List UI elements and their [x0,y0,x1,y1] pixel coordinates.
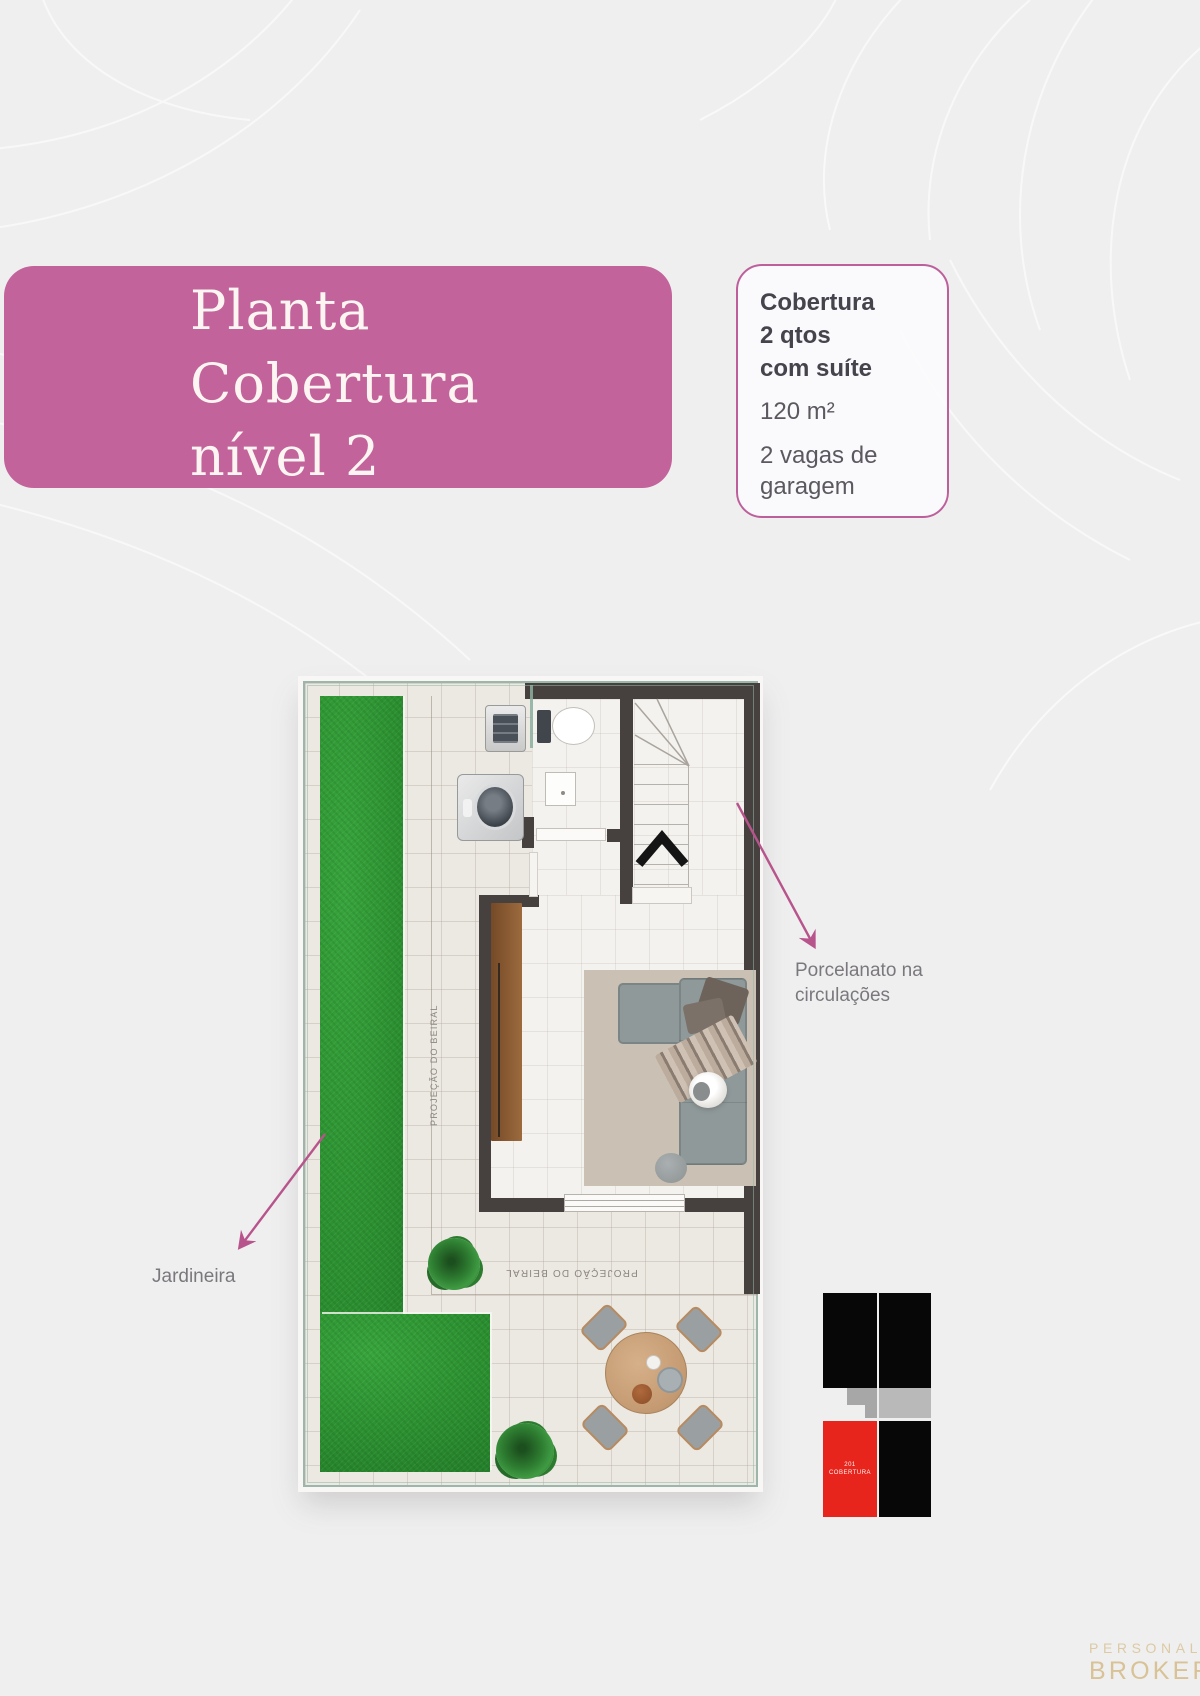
stack-unit-number: 201 [844,1462,856,1469]
callout-arrows [0,0,1200,1696]
brand-logo: PERSONAL BROKER [1089,1640,1200,1686]
brand-broker: BROKER [1089,1657,1200,1686]
brand-personal: PERSONAL [1089,1640,1200,1656]
stack-unit-type: COBERTURA [829,1470,871,1477]
stack-block-top-right [879,1293,931,1388]
porcelanato-callout-line: Porcelanato na [795,958,923,983]
brochure-page: Planta Cobertura nível 2 Cobertura 2 qto… [0,0,1200,1696]
stack-block-bottom-right [879,1421,931,1517]
stack-garage-level [879,1388,931,1418]
stack-unit-201-highlight: 201 COBERTURA [823,1421,877,1517]
stack-garage-level [847,1388,877,1405]
stack-garage-level [865,1405,877,1418]
building-stack-diagram: 201 COBERTURA [823,1293,931,1517]
porcelanato-callout-line: circulações [795,983,923,1008]
jardineira-arrow [240,1134,325,1247]
porcelanato-arrow [737,803,814,946]
porcelanato-callout-label: Porcelanato na circulações [795,958,923,1008]
jardineira-callout-label: Jardineira [152,1264,235,1289]
stack-block-top-left [823,1293,877,1388]
